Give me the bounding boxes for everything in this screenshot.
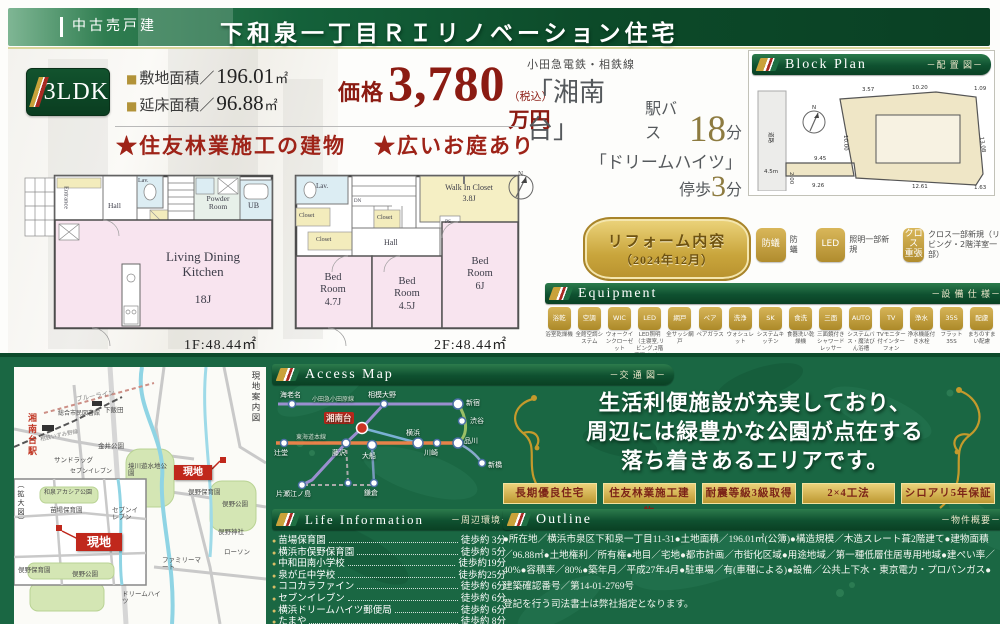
feature-highlights: ★住友林業施工の建物 ★広いお庭あり (116, 130, 535, 160)
cert-badges: 長期優良住宅 住友林業施工建物 耐震等級3級取得 2×4工法 シロアリ5年保証 (503, 483, 995, 504)
room-bed3-size: 6J (459, 281, 501, 292)
access-map-header: Access Map －交 通 図－ (272, 364, 674, 385)
stripe-icon (276, 368, 301, 381)
room-bed2: Bed Room (386, 276, 428, 300)
equipment-item-icon: AUTO (849, 307, 872, 330)
life-info-item: ● 横浜市俣野保育園 徒歩約 5分 (272, 544, 506, 556)
svg-text:1.63: 1.63 (974, 185, 987, 191)
floor-area-value: 96.88 (216, 91, 263, 116)
dotted-leader (395, 604, 458, 613)
svg-text:3.57: 3.57 (862, 87, 875, 93)
room-powder: Powder Room (198, 195, 238, 212)
circle-bullet-icon: ● (272, 537, 276, 545)
area-message: 生活利便施設が充実しており、 周辺には緑豊かな公園が点在する 落ち着きあるエリア… (520, 389, 990, 477)
site-map-panel: 湘南台駅 ブルーライン 相鉄いずみ野線 下飯田 総合市民図書館 サンドラッグ セ… (14, 367, 266, 624)
site-marker: 現地 (76, 533, 122, 551)
dotted-leader (357, 580, 458, 589)
life-info-item: ● セブンイレブン 徒歩約 6分 (272, 590, 506, 602)
circle-bullet-icon: ● (272, 560, 276, 568)
land-area-row: ■ 敷地面積／ 196.01 ㎡ (126, 64, 288, 91)
flyer-page: 中古売戸建 下和泉一丁目ＲＩリノベーション住宅 3LDK ■ 敷地面積／ 196… (0, 0, 1000, 624)
dotted-leader (309, 615, 457, 624)
rail-line-name: 小田急電鉄・相鉄線 (527, 56, 742, 72)
price-block: 価格 3,780 （税込） 万円 (338, 58, 553, 134)
compass-icon: N (803, 105, 825, 133)
bus-minutes: 18 (689, 113, 726, 146)
room-entrance: Entrance (62, 186, 69, 209)
svg-text:4.5m: 4.5m (764, 169, 778, 175)
bottom-section: 湘南台駅 ブルーライン 相鉄いずみ野線 下飯田 総合市民図書館 サンドラッグ セ… (0, 353, 1000, 624)
reform-badge: リフォーム内容 （2024年12月） (583, 217, 751, 281)
equipment-item-icon: WIC (608, 307, 631, 330)
dotted-leader (329, 534, 458, 543)
feature-2: ★広いお庭あり (374, 130, 535, 160)
equipment-item-icon: 洗浄 (729, 307, 752, 330)
room-ub: UB (248, 202, 259, 211)
reform-items: 防蟻 防蟻 LED 照明一部新規 クロス 重張 クロス一部新規（リビング・2階洋… (756, 228, 1000, 262)
life-info-item: ● ココカラファイン 徒歩約 6分 (272, 578, 506, 590)
equipment-item-icon: ペア (699, 307, 722, 330)
svg-text:N: N (812, 105, 816, 111)
land-area-value: 196.01 (216, 64, 274, 89)
inset-label: （拡大図） (16, 481, 26, 526)
access-summary: 小田急電鉄・相鉄線 「湘南台」 駅バス 18 分 「ドリームハイツ」 停歩 3 … (527, 56, 742, 200)
svg-text:10.20: 10.20 (912, 85, 928, 91)
block-plan-panel: Block Plan －配 置 図－ 3.57 10.20 1.09 13.08… (748, 50, 995, 196)
map-station-label: 湘南台駅 (26, 413, 39, 457)
block-plan-header: Block Plan －配 置 図－ (752, 54, 991, 75)
life-info-list: ● 苗場保育園 徒歩約 3分 ● 横浜市俣野保育園 徒歩約 5分 ● 中和田南小… (272, 532, 506, 624)
stairs-dn: DN (354, 199, 361, 205)
circle-bullet-icon: ● (272, 572, 276, 580)
floor-plan-2f: Lav. Closet Closet Closet DN Walk In Clo… (288, 166, 536, 360)
dotted-leader (348, 557, 456, 566)
square-bullet-icon: ■ (126, 99, 137, 113)
room-ldk-size: 18J (164, 293, 242, 306)
svg-text:道路: 道路 (767, 132, 775, 144)
room-ldk: Living Dining Kitchen (164, 250, 242, 279)
cert-badge: 耐震等級3級取得 (702, 483, 796, 504)
equipment-item-icon: 浴乾 (548, 307, 571, 330)
equipment-item-icon: 三面 (819, 307, 842, 330)
equipment-item-icon: LED (638, 307, 661, 330)
circle-bullet-icon: ● (272, 607, 276, 615)
page-title: 下和泉一丁目ＲＩリノベーション住宅 (220, 14, 679, 48)
floor2-area: 2F:48.44㎡ (434, 334, 507, 354)
cert-badge: シロアリ5年保証 (901, 483, 995, 504)
feature-1: ★住友林業施工の建物 (116, 130, 346, 160)
compass-icon: N (506, 168, 536, 202)
equipment-item-icon: 35S (940, 307, 963, 330)
floor1-area: 1F:48.44㎡ (184, 334, 257, 354)
circle-bullet-icon: ● (272, 595, 276, 603)
reform-item-icon: 防蟻 (756, 228, 786, 262)
floor-area-row: ■ 延床面積／ 96.88 ㎡ (126, 91, 288, 118)
stripe-icon (276, 513, 301, 526)
plot-diagram: 3.57 10.20 1.09 13.08 1.63 12.61 9.26 9.… (752, 77, 991, 191)
room-lav: Lav. (316, 183, 328, 191)
life-info-header: Life Information －周辺環境－ (272, 509, 519, 530)
bus-stop-name: 「ドリームハイツ」 (527, 148, 742, 173)
stripe-icon (507, 513, 532, 526)
svg-text:N: N (518, 170, 523, 178)
life-info-item: ● 中和田南小学校 徒歩約19分 (272, 555, 506, 567)
map-guide-label: 現地案内図 (250, 371, 262, 424)
room-closet: Closet (316, 237, 331, 244)
equipment-item-icon: 空調 (578, 307, 601, 330)
property-category: 中古売戸建 (60, 17, 157, 37)
room-closet: Closet (377, 215, 392, 222)
svg-text:2.00: 2.00 (788, 172, 794, 185)
life-info-item: ● 泉が丘中学校 徒歩約25分 (272, 567, 506, 579)
layout-badge: 3LDK (26, 68, 110, 116)
outline-note: 登記を行う司法書士は弊社指定となります。 (503, 596, 995, 610)
dotted-leader (357, 546, 458, 555)
equipment-item-icon: 配慮 (970, 307, 993, 330)
room-hall: Hall (384, 239, 398, 248)
reform-item: クロス 重張 クロス一部新規（リビング・2階洋室一部） (903, 228, 1000, 262)
property-outline: ●所在地／横浜市泉区下和泉一丁目11-31●土地面積／196.01㎡(公簿)●構… (503, 532, 995, 594)
equipment-item-icon: SK (759, 307, 782, 330)
room-bed2-size: 4.5J (386, 301, 428, 312)
floor-plan-1f: Entrance Hall Lav. Powder Room UB Living… (22, 166, 280, 360)
stripe-icon (756, 58, 781, 71)
room-lav: Lav. (138, 178, 148, 185)
life-info-item: ● 苗場保育園 徒歩約 3分 (272, 532, 506, 544)
highlight-station: 湘南台 (324, 412, 354, 424)
station-name: 「湘南台」 (527, 72, 643, 146)
room-bed3: Bed Room (459, 256, 501, 280)
walk-minutes: 3 (711, 173, 726, 200)
life-info-item: ● 横浜ドリームハイツ郵便局 徒歩約 6分 (272, 602, 506, 614)
site-marker: 現地 (174, 465, 212, 480)
room-hall: Hall (108, 202, 121, 210)
equipment-item-icon: 浄水 (910, 307, 933, 330)
room-bed1: Bed Room (312, 272, 354, 296)
room-wic: Walk In Closet (433, 184, 505, 193)
layout-label: 3LDK (44, 79, 109, 106)
svg-text:10.00: 10.00 (842, 135, 849, 151)
reform-item-icon: LED (816, 228, 846, 262)
cert-badge: 住友林業施工建物 (603, 483, 697, 504)
equipment-item-icon: 網戸 (668, 307, 691, 330)
dotted-leader (338, 569, 455, 578)
area-figures: ■ 敷地面積／ 196.01 ㎡ ■ 延床面積／ 96.88 ㎡ (126, 64, 288, 118)
svg-text:1.09: 1.09 (974, 86, 987, 92)
room-ps: PS (445, 219, 451, 225)
divider (0, 353, 1000, 357)
price-value: 3,780 (388, 58, 506, 108)
header-bar: 中古売戸建 下和泉一丁目ＲＩリノベーション住宅 (8, 8, 990, 46)
svg-text:9.45: 9.45 (814, 156, 827, 162)
circle-bullet-icon: ● (272, 618, 276, 624)
reform-item: LED 照明一部新規 (816, 228, 892, 262)
svg-text:9.26: 9.26 (812, 183, 825, 189)
equipment-header: Equipment －設 備 仕 様－ (545, 283, 1000, 304)
cert-badge: 2×4工法 (802, 483, 896, 504)
outline-header: Outline －物件概要－ (503, 509, 1000, 530)
room-wic-size: 3.8J (433, 195, 505, 204)
svg-text:12.61: 12.61 (912, 184, 928, 190)
circle-bullet-icon: ● (272, 549, 276, 557)
room-bed1-size: 4.7J (312, 297, 354, 308)
dotted-leader (348, 592, 458, 601)
reform-item: 防蟻 防蟻 (756, 228, 804, 262)
equipment-item-icon: TV (880, 307, 903, 330)
circle-bullet-icon: ● (272, 583, 276, 591)
reform-item-icon: クロス 重張 (903, 228, 924, 262)
square-bullet-icon: ■ (126, 72, 137, 86)
room-closet: Closet (299, 213, 314, 220)
stripe-icon (549, 287, 574, 300)
divider (115, 126, 521, 127)
equipment-item-icon: 食洗 (789, 307, 812, 330)
cert-badge: 長期優良住宅 (503, 483, 597, 504)
